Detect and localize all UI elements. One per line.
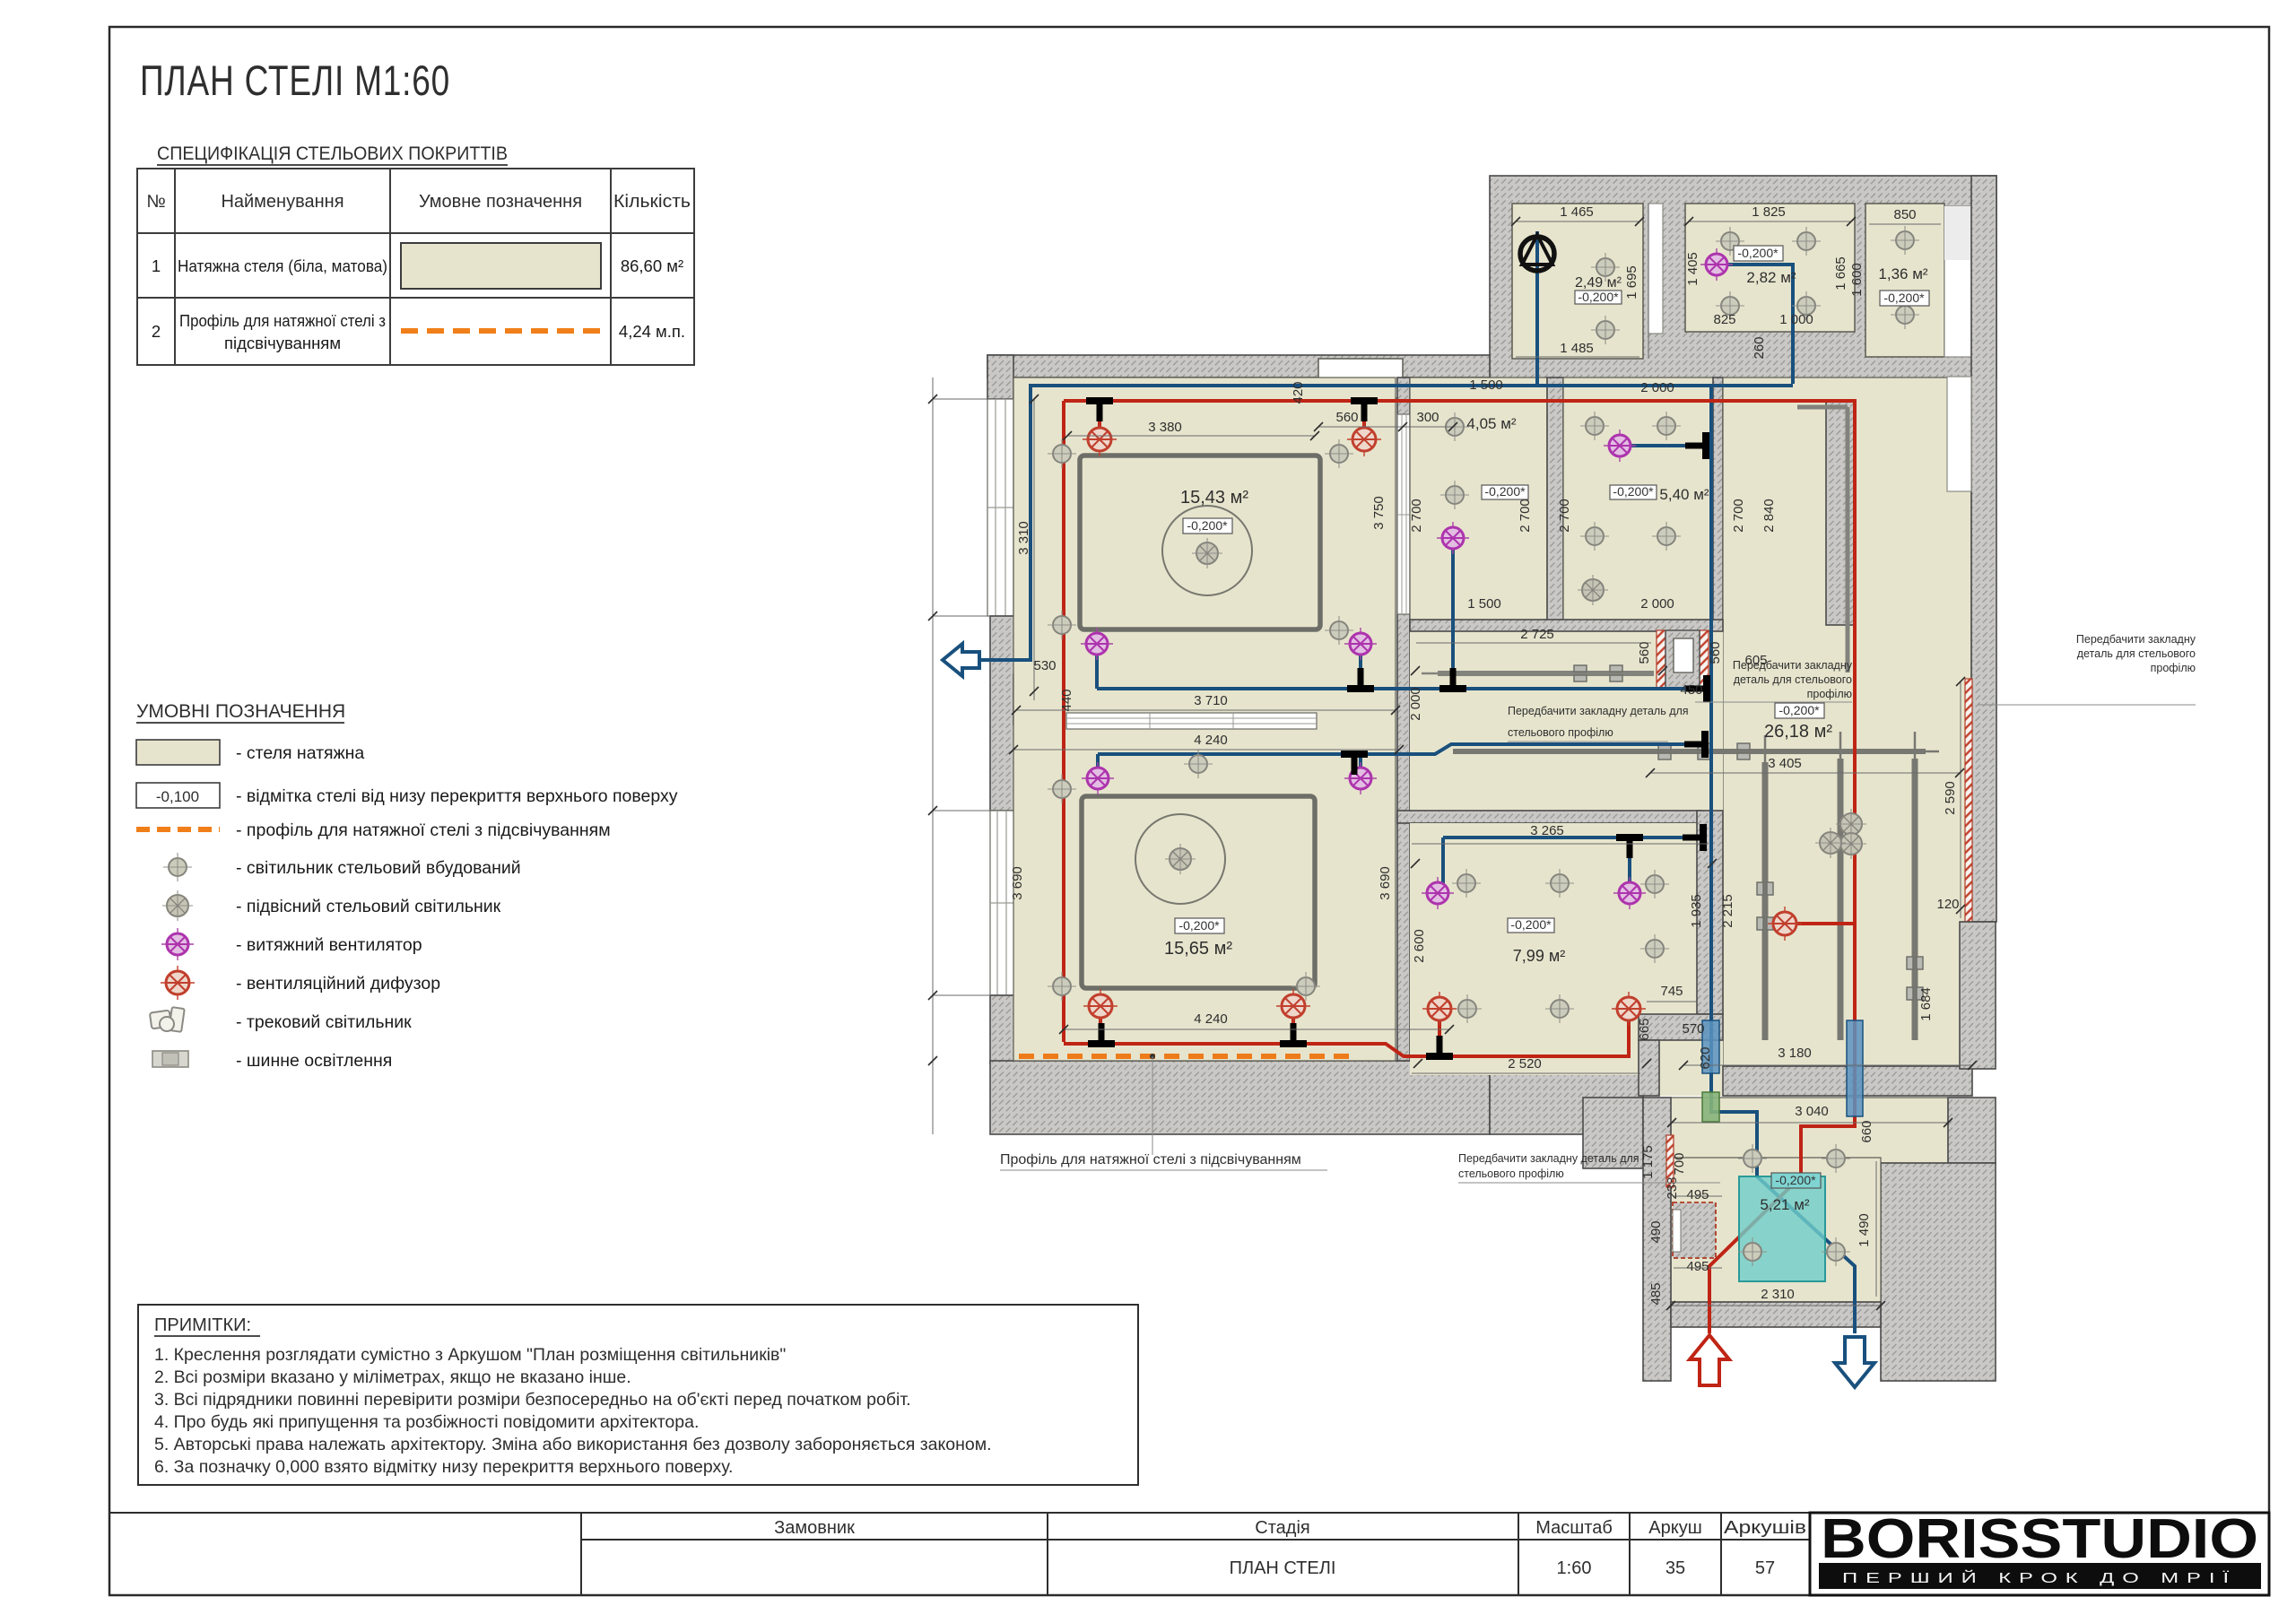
svg-text:1:60: 1:60	[1557, 1558, 1592, 1578]
svg-text:665: 665	[1637, 1018, 1652, 1040]
svg-text:485: 485	[1648, 1282, 1664, 1305]
svg-text:Передбачити закладну: Передбачити закладну	[1733, 659, 1853, 672]
svg-text:3 180: 3 180	[1778, 1046, 1812, 1061]
svg-text:4,24 м.п.: 4,24 м.п.	[619, 322, 685, 341]
svg-text:7,99 м²: 7,99 м²	[1513, 947, 1565, 965]
svg-text:1 000: 1 000	[1779, 312, 1813, 327]
svg-text:Передбачити закладну деталь дл: Передбачити закладну деталь для	[1508, 705, 1689, 717]
svg-text:1 665: 1 665	[1833, 256, 1848, 291]
svg-text:1 935: 1 935	[1689, 894, 1704, 928]
svg-text:495: 495	[1686, 1187, 1709, 1202]
svg-text:3 310: 3 310	[1016, 521, 1031, 555]
svg-text:238: 238	[1665, 1176, 1680, 1199]
svg-text:1 600: 1 600	[1849, 263, 1865, 297]
svg-text:2 600: 2 600	[1412, 929, 1427, 963]
svg-text:700: 700	[1672, 1152, 1687, 1175]
svg-text:86,60 м²: 86,60 м²	[621, 256, 683, 275]
svg-text:440: 440	[1059, 689, 1074, 711]
svg-text:2: 2	[152, 322, 161, 341]
svg-text:-0,200*: -0,200*	[1510, 917, 1552, 932]
svg-text:-0,200*: -0,200*	[1178, 918, 1220, 933]
svg-text:підсвічуванням: підсвічуванням	[224, 334, 341, 352]
svg-text:3 750: 3 750	[1371, 496, 1387, 530]
svg-text:BORISSTUDIO: BORISSTUDIO	[1821, 1508, 2258, 1570]
svg-text:1. Креслення розглядати суміст: 1. Креслення розглядати сумістно з Аркуш…	[154, 1345, 786, 1365]
svg-text:2 520: 2 520	[1508, 1056, 1542, 1072]
svg-text:-0,200*: -0,200*	[1737, 246, 1779, 260]
svg-text:Умовне позначення: Умовне позначення	[419, 192, 582, 212]
svg-text:450: 450	[1680, 682, 1702, 698]
svg-text:2,82 м²: 2,82 м²	[1746, 269, 1796, 286]
svg-text:-0,200*: -0,200*	[1775, 1173, 1816, 1187]
svg-text:-0,100: -0,100	[156, 788, 199, 805]
svg-text:5. Авторські права належать ар: 5. Авторські права належать архітектору.…	[154, 1435, 992, 1454]
svg-text:2 725: 2 725	[1520, 627, 1554, 642]
svg-text:-0,200*: -0,200*	[1613, 484, 1654, 499]
svg-text:2 840: 2 840	[1761, 499, 1777, 533]
svg-text:- трековий світильник: - трековий світильник	[236, 1012, 412, 1032]
svg-text:профілю: профілю	[2151, 662, 2196, 674]
svg-text:-0,200*: -0,200*	[1779, 703, 1820, 717]
svg-text:деталь для стельового: деталь для стельового	[1734, 673, 1852, 686]
svg-text:Кількість: Кількість	[613, 192, 691, 212]
svg-text:850: 850	[1893, 207, 1916, 222]
svg-text:2 700: 2 700	[1518, 499, 1533, 533]
svg-text:2. Всі розміри вказано у мілім: 2. Всі розміри вказано у міліметрах, якщ…	[154, 1367, 631, 1387]
svg-text:490: 490	[1648, 1220, 1664, 1243]
svg-text:3 040: 3 040	[1795, 1104, 1829, 1119]
svg-text:1 405: 1 405	[1685, 252, 1700, 286]
svg-text:1,36 м²: 1,36 м²	[1878, 265, 1927, 282]
svg-text:530: 530	[1033, 658, 1056, 673]
svg-text:ПЛАН СТЕЛІ М1:60: ПЛАН СТЕЛІ М1:60	[140, 56, 450, 104]
svg-text:- профіль для натяжної стелі з: - профіль для натяжної стелі з підсвічув…	[236, 820, 611, 840]
svg-text:4,05 м²: 4,05 м²	[1466, 415, 1516, 432]
svg-text:деталь для стельового: деталь для стельового	[2077, 647, 2196, 660]
svg-text:3. Всі підрядники повинні пере: 3. Всі підрядники повинні перевірити роз…	[154, 1390, 911, 1410]
svg-text:5,21 м²: 5,21 м²	[1760, 1196, 1809, 1213]
svg-text:1 695: 1 695	[1624, 265, 1639, 299]
svg-text:1 825: 1 825	[1752, 204, 1786, 220]
svg-text:3 690: 3 690	[1378, 866, 1393, 900]
svg-text:745: 745	[1660, 984, 1683, 999]
svg-text:Замовник: Замовник	[774, 1518, 855, 1538]
svg-text:4 240: 4 240	[1194, 733, 1228, 748]
svg-text:Аркушів: Аркушів	[1724, 1518, 1806, 1538]
svg-text:- вентиляційний дифузор: - вентиляційний дифузор	[236, 974, 440, 994]
svg-text:3 405: 3 405	[1768, 756, 1802, 771]
svg-text:1 175: 1 175	[1640, 1145, 1656, 1179]
svg-text:СПЕЦИФІКАЦІЯ СТЕЛЬОВИХ ПОКРИТТ: СПЕЦИФІКАЦІЯ СТЕЛЬОВИХ ПОКРИТТІВ	[157, 143, 508, 164]
svg-text:1 485: 1 485	[1560, 341, 1594, 356]
svg-text:Найменування: Найменування	[221, 192, 344, 212]
svg-text:Передбачити закладну деталь дл: Передбачити закладну деталь для	[1458, 1152, 1639, 1165]
svg-text:3 265: 3 265	[1530, 823, 1564, 838]
svg-text:1 465: 1 465	[1560, 204, 1594, 220]
svg-text:- витяжний вентилятор: - витяжний вентилятор	[236, 935, 422, 955]
svg-text:Передбачити закладну: Передбачити закладну	[2076, 633, 2196, 646]
svg-text:2 000: 2 000	[1640, 596, 1674, 612]
svg-text:профілю: профілю	[1807, 688, 1852, 700]
svg-text:560: 560	[1708, 641, 1723, 664]
svg-text:1 490: 1 490	[1857, 1213, 1872, 1247]
svg-text:- відмітка стелі від низу пере: - відмітка стелі від низу перекриття вер…	[236, 786, 678, 806]
svg-text:Натяжна стеля (біла, матова): Натяжна стеля (біла, матова)	[178, 256, 387, 275]
svg-text:1: 1	[152, 256, 161, 275]
svg-text:620: 620	[1698, 1046, 1713, 1069]
svg-text:4 240: 4 240	[1194, 1011, 1228, 1027]
svg-text:стельового профілю: стельового профілю	[1458, 1167, 1564, 1180]
svg-text:Аркуш: Аркуш	[1648, 1518, 1701, 1538]
svg-text:-0,200*: -0,200*	[1484, 484, 1526, 499]
svg-text:560: 560	[1637, 641, 1652, 664]
svg-text:15,43 м²: 15,43 м²	[1180, 488, 1248, 508]
svg-text:495: 495	[1686, 1259, 1709, 1274]
svg-text:3 710: 3 710	[1194, 693, 1228, 708]
svg-text:3 690: 3 690	[1010, 866, 1025, 900]
svg-text:26,18 м²: 26,18 м²	[1764, 722, 1832, 742]
svg-text:2 700: 2 700	[1409, 499, 1424, 533]
svg-text:1 500: 1 500	[1469, 378, 1503, 393]
svg-text:1 684: 1 684	[1918, 987, 1934, 1021]
svg-text:560: 560	[1335, 410, 1358, 425]
svg-text:- шинне освітлення: - шинне освітлення	[236, 1051, 392, 1071]
svg-text:Профіль для натяжної стелі з: Профіль для натяжної стелі з	[179, 311, 386, 330]
svg-text:35: 35	[1665, 1558, 1685, 1578]
svg-text:ПЛАН СТЕЛІ: ПЛАН СТЕЛІ	[1230, 1558, 1336, 1578]
svg-text:УМОВНІ ПОЗНАЧЕННЯ: УМОВНІ ПОЗНАЧЕННЯ	[136, 701, 345, 722]
svg-text:57: 57	[1755, 1558, 1775, 1578]
svg-text:260: 260	[1752, 336, 1767, 359]
svg-text:ПРИМІТКИ:: ПРИМІТКИ:	[154, 1315, 251, 1335]
svg-text:2 000: 2 000	[1640, 380, 1674, 395]
svg-text:Профіль для натяжної стелі з п: Профіль для натяжної стелі з підсвічуван…	[1000, 1152, 1301, 1167]
svg-text:6. За позначку 0,000 взято від: 6. За позначку 0,000 взято відмітку низу…	[154, 1457, 733, 1477]
svg-text:- підвісний стельовий світильн: - підвісний стельовий світильник	[236, 897, 501, 916]
svg-text:2,49 м²: 2,49 м²	[1575, 275, 1622, 291]
svg-text:3 380: 3 380	[1148, 420, 1182, 435]
svg-text:420: 420	[1291, 381, 1306, 404]
svg-text:2 000: 2 000	[1408, 687, 1423, 721]
svg-text:-0,200*: -0,200*	[1883, 291, 1925, 305]
svg-text:660: 660	[1859, 1120, 1874, 1142]
svg-text:825: 825	[1713, 312, 1735, 327]
svg-text:300: 300	[1416, 410, 1439, 425]
svg-text:4. Про будь які припущення та: 4. Про будь які припущення та розбіжност…	[154, 1412, 699, 1432]
svg-text:Масштаб: Масштаб	[1535, 1518, 1613, 1538]
svg-text:2 310: 2 310	[1761, 1287, 1795, 1302]
svg-text:120: 120	[1936, 897, 1959, 912]
svg-text:-0,200*: -0,200*	[1578, 290, 1619, 304]
svg-text:ПЕРШИЙ КРОК ДО МРІЇ: ПЕРШИЙ КРОК ДО МРІЇ	[1842, 1569, 2237, 1586]
svg-text:стельового профілю: стельового профілю	[1508, 726, 1613, 739]
svg-text:2 700: 2 700	[1731, 499, 1746, 533]
svg-text:2 700: 2 700	[1557, 499, 1572, 533]
svg-text:15,65 м²: 15,65 м²	[1164, 939, 1232, 959]
svg-text:570: 570	[1682, 1021, 1704, 1037]
svg-text:-0,200*: -0,200*	[1187, 518, 1228, 533]
svg-text:2 215: 2 215	[1720, 894, 1735, 928]
svg-text:1 500: 1 500	[1467, 596, 1501, 612]
svg-text:2 590: 2 590	[1943, 781, 1958, 815]
svg-text:- світильник стельовий вбудова: - світильник стельовий вбудований	[236, 858, 521, 878]
svg-text:- стеля натяжна: - стеля натяжна	[236, 743, 364, 763]
svg-text:№: №	[146, 192, 165, 212]
svg-text:5,40 м²: 5,40 м²	[1659, 486, 1709, 503]
svg-text:Стадія: Стадія	[1255, 1518, 1309, 1538]
